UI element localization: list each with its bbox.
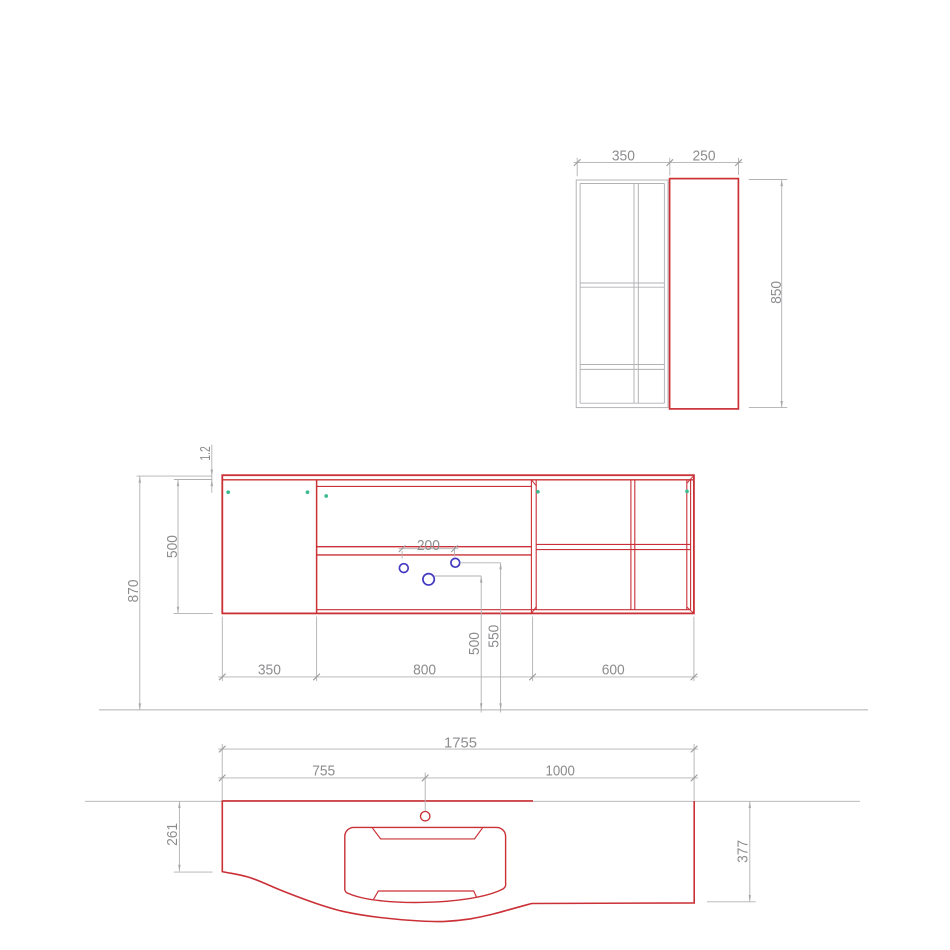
- svg-text:850: 850: [768, 281, 785, 304]
- svg-text:800: 800: [413, 661, 436, 678]
- svg-text:755: 755: [312, 762, 335, 779]
- svg-text:500: 500: [164, 535, 181, 558]
- svg-text:377: 377: [734, 840, 751, 863]
- svg-text:870: 870: [125, 580, 142, 603]
- svg-text:500: 500: [466, 632, 483, 655]
- svg-text:600: 600: [602, 661, 625, 678]
- svg-text:1000: 1000: [545, 762, 575, 779]
- svg-text:550: 550: [485, 625, 502, 648]
- svg-text:1755: 1755: [444, 734, 477, 751]
- svg-text:350: 350: [612, 148, 635, 165]
- svg-text:200: 200: [417, 537, 440, 554]
- svg-text:261: 261: [164, 823, 181, 846]
- svg-text:1.2: 1.2: [197, 446, 214, 461]
- svg-text:250: 250: [693, 148, 716, 165]
- svg-text:350: 350: [258, 661, 281, 678]
